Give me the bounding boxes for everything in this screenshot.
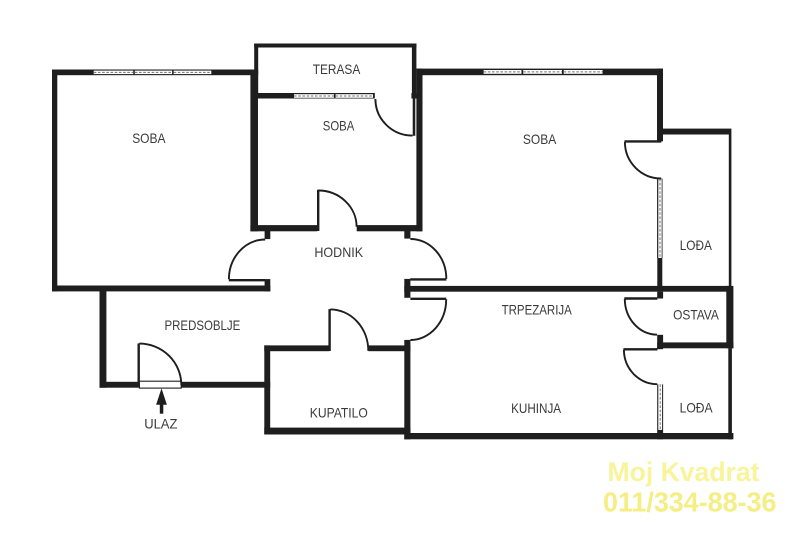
svg-text:LOĐA: LOĐA	[680, 400, 714, 416]
svg-text:Moj Kvadrat: Moj Kvadrat	[608, 457, 760, 487]
svg-text:TERASA: TERASA	[313, 61, 361, 77]
svg-text:HODNIK: HODNIK	[314, 244, 363, 260]
svg-text:TRPEZARIJA: TRPEZARIJA	[502, 301, 573, 317]
svg-text:SOBA: SOBA	[132, 130, 166, 146]
svg-text:011/334-88-36: 011/334-88-36	[603, 486, 776, 517]
svg-text:OSTAVA: OSTAVA	[673, 306, 719, 322]
svg-text:LOĐA: LOĐA	[680, 237, 713, 253]
svg-text:SOBA: SOBA	[323, 117, 355, 133]
svg-text:KUPATILO: KUPATILO	[310, 404, 368, 420]
svg-text:SOBA: SOBA	[523, 131, 557, 147]
svg-text:PREDSOBLJE: PREDSOBLJE	[165, 317, 241, 333]
svg-text:ULAZ: ULAZ	[144, 415, 178, 431]
svg-text:KUHINJA: KUHINJA	[511, 400, 562, 416]
